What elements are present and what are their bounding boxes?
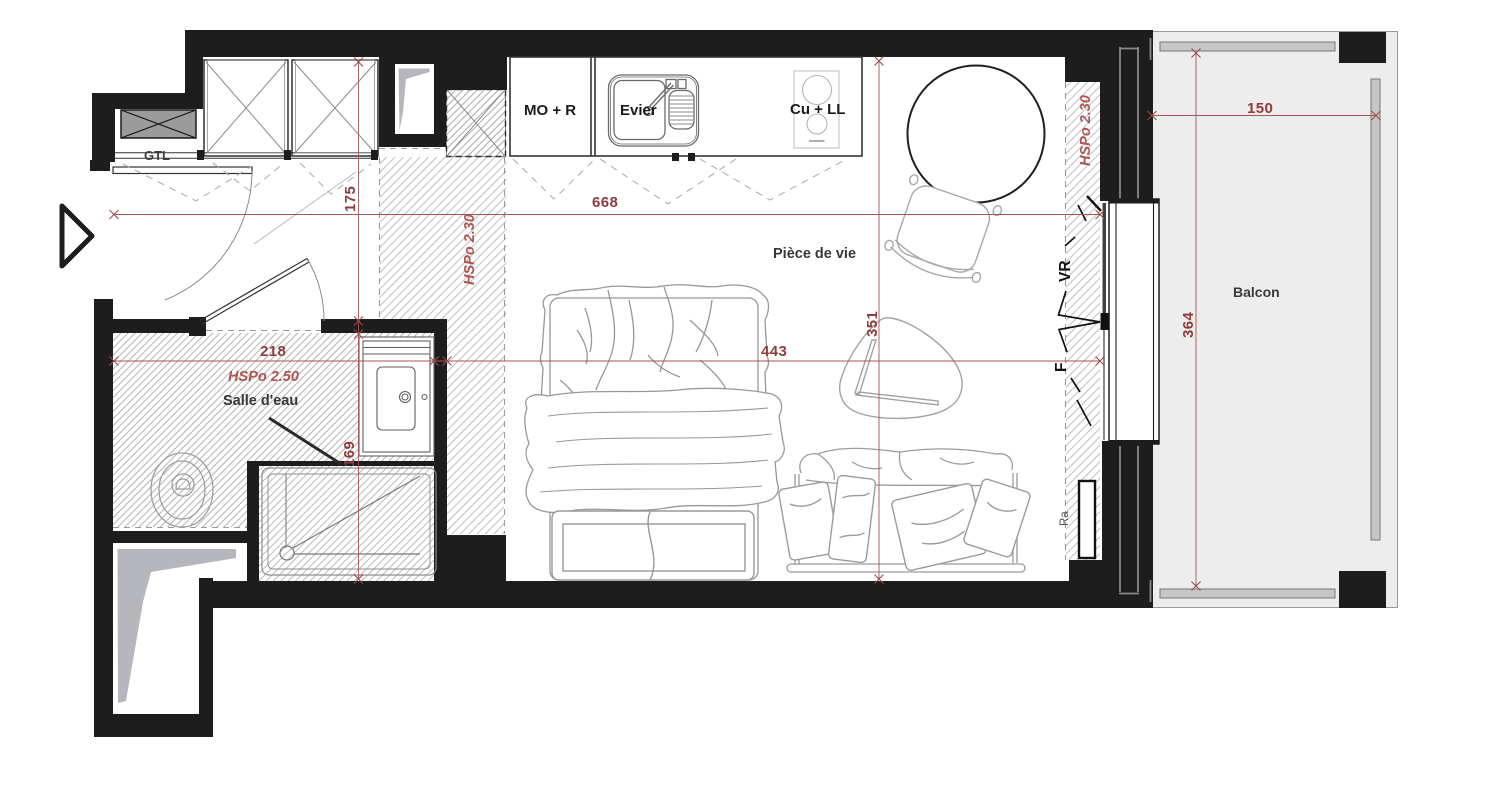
svg-text:Salle d'eau: Salle d'eau — [223, 393, 298, 409]
svg-text:Cu + LL: Cu + LL — [790, 101, 845, 118]
svg-text:668: 668 — [592, 194, 618, 211]
svg-text:175: 175 — [342, 186, 359, 212]
svg-text:443: 443 — [761, 343, 787, 360]
svg-text:351: 351 — [864, 311, 881, 337]
svg-text:Pièce de vie: Pièce de vie — [773, 246, 856, 262]
svg-text:Evier: Evier — [620, 102, 657, 119]
svg-text:169: 169 — [341, 441, 358, 467]
svg-text:MO + R: MO + R — [524, 102, 576, 119]
svg-text:HSPo 2.30: HSPo 2.30 — [462, 214, 478, 285]
svg-text:HSPo 2.30: HSPo 2.30 — [1078, 95, 1094, 166]
svg-text:HSPo 2.50: HSPo 2.50 — [228, 369, 299, 385]
svg-text:150: 150 — [1247, 100, 1273, 117]
svg-text:GTL: GTL — [144, 148, 170, 163]
svg-text:218: 218 — [260, 343, 286, 360]
svg-text:F: F — [1053, 363, 1070, 372]
svg-text:Ra: Ra — [1059, 511, 1071, 526]
svg-text:VR: VR — [1057, 260, 1074, 282]
svg-text:364: 364 — [1180, 312, 1197, 338]
svg-text:Balcon: Balcon — [1233, 284, 1280, 300]
